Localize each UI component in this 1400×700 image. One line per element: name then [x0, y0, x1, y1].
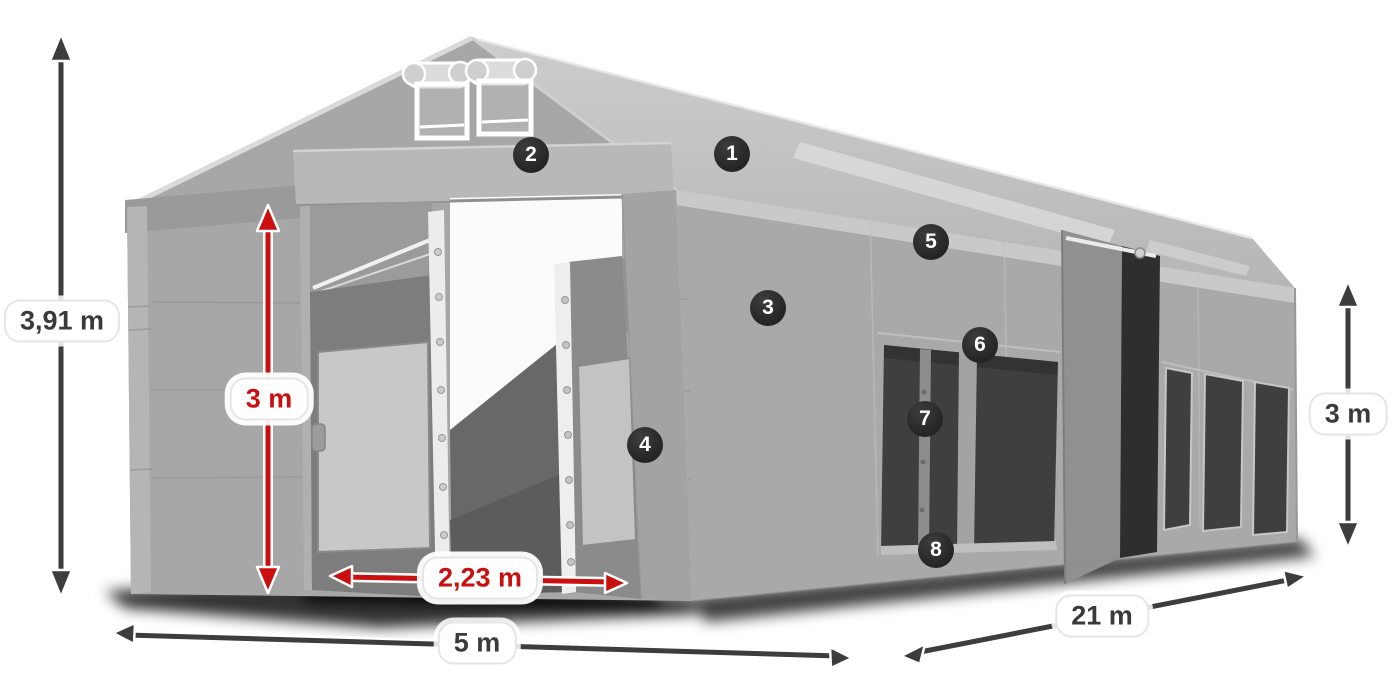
stage: 3,91 m 3 m 2,23 m 5 m 21 m 3 m 12345678 — [0, 0, 1400, 700]
arrow-total-height — [50, 34, 72, 597]
mesh-window-right — [578, 358, 636, 546]
side-door-open — [1062, 230, 1160, 584]
side-window-opening-near — [881, 345, 1058, 555]
door-strap — [312, 424, 325, 451]
arrow-tent-width — [113, 623, 852, 668]
arrow-side-height — [1337, 281, 1359, 548]
front-door-left — [310, 201, 450, 597]
side-windows-far — [1164, 368, 1289, 535]
roof-vent-right — [466, 59, 536, 134]
mesh-window-left — [318, 342, 430, 552]
roof-vents — [403, 59, 536, 138]
tent-illustration — [0, 0, 1400, 700]
